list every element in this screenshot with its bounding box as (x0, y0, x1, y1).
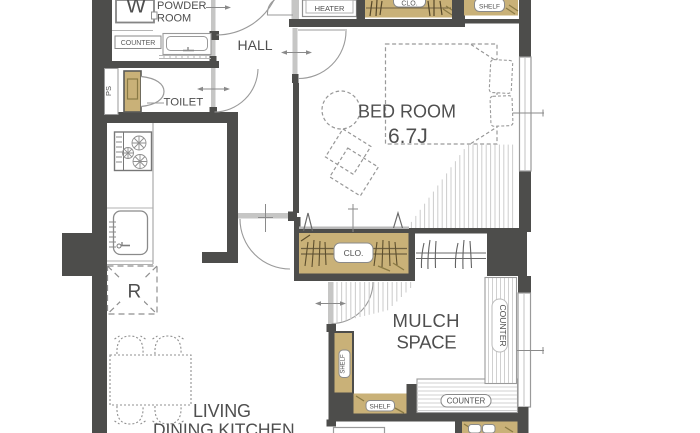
svg-text:LIVING: LIVING (193, 401, 251, 421)
svg-text:CLO.: CLO. (344, 248, 364, 258)
svg-text:POWDER: POWDER (157, 0, 207, 12)
svg-text:BED ROOM: BED ROOM (358, 102, 456, 122)
svg-text:PS: PS (104, 86, 113, 96)
svg-text:COUNTER: COUNTER (498, 304, 508, 346)
svg-text:R: R (128, 282, 142, 303)
svg-text:SHELF: SHELF (479, 4, 500, 11)
svg-text:HALL: HALL (238, 37, 273, 53)
svg-text:ROOM: ROOM (157, 13, 191, 25)
svg-text:COUNTER: COUNTER (447, 397, 486, 406)
svg-text:SHELF: SHELF (341, 354, 347, 374)
svg-text:HEATER: HEATER (315, 4, 345, 13)
svg-text:W: W (126, 0, 146, 18)
svg-text:DINING KITCHEN: DINING KITCHEN (153, 420, 295, 433)
svg-text:SPACE: SPACE (397, 332, 457, 353)
svg-text:CLO.: CLO. (401, 1, 417, 8)
svg-text:MULCH: MULCH (393, 310, 460, 331)
svg-text:COUNTER: COUNTER (121, 40, 156, 47)
svg-text:SHELF: SHELF (370, 404, 391, 411)
svg-text:6.7J: 6.7J (388, 125, 428, 148)
svg-text:TOILET: TOILET (164, 97, 204, 109)
